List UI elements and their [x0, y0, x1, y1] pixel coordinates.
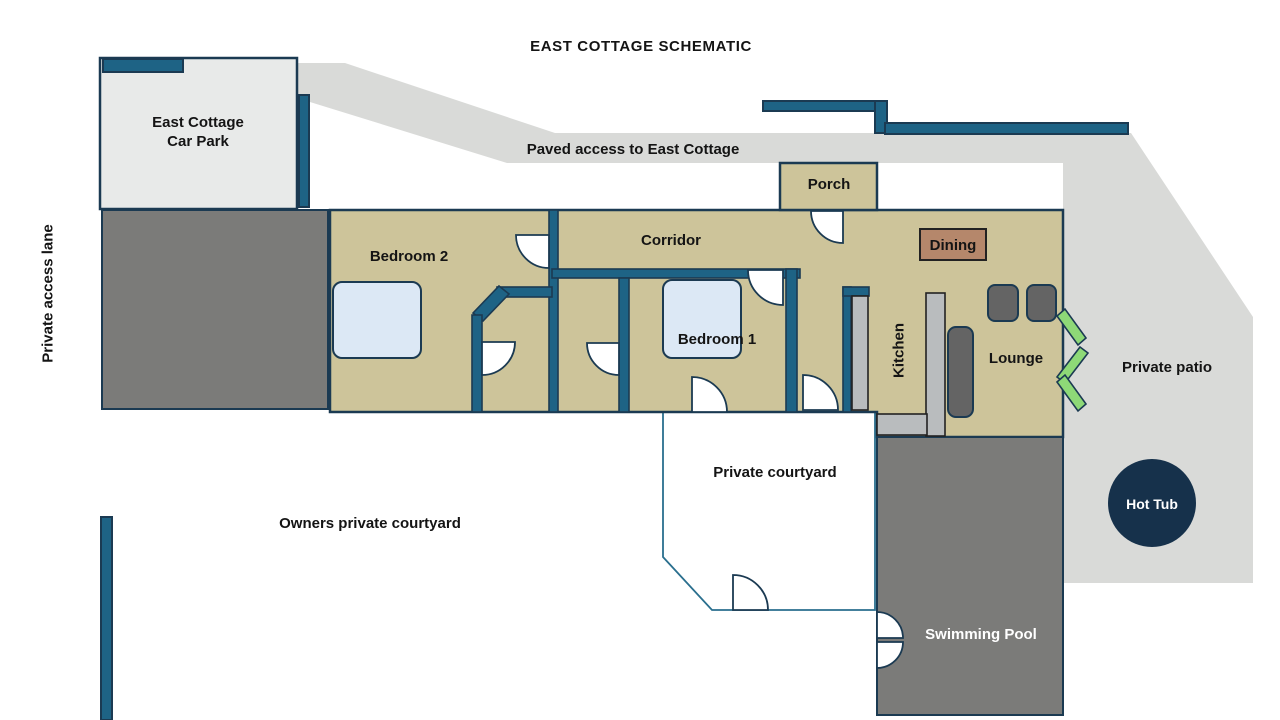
floor-plan-canvas: EAST COTTAGE SCHEMATIC East Cottage Car … — [0, 0, 1280, 720]
car-park-label: East Cottage Car Park — [138, 113, 258, 151]
lounge-label: Lounge — [956, 349, 1076, 368]
bedroom1-left-wall — [619, 278, 629, 412]
ensuite-left-wall — [472, 315, 482, 412]
bedroom2-label: Bedroom 2 — [339, 247, 479, 266]
bedroom1-right-wall — [786, 269, 797, 412]
entrance-wall-upper — [763, 101, 877, 111]
access-lane-label: Private access lane — [39, 194, 58, 394]
kitchen-wall-cap — [843, 287, 869, 296]
entrance-wall-long — [885, 123, 1128, 134]
bedroom1-label: Bedroom 1 — [647, 330, 787, 349]
paved-access-label: Paved access to East Cottage — [483, 140, 783, 159]
kitchen-counter-left — [852, 296, 868, 410]
bedroom2-bed — [333, 282, 421, 358]
kitchen-label: Kitchen — [890, 301, 909, 401]
page-title: EAST COTTAGE SCHEMATIC — [441, 37, 841, 56]
armchair-1 — [988, 285, 1018, 321]
carpark-top-wall — [103, 59, 183, 72]
owners-courtyard-label: Owners private courtyard — [250, 514, 490, 533]
bedroom2-right-wall — [549, 210, 558, 412]
sofa — [948, 327, 973, 417]
armchair-2 — [1027, 285, 1056, 321]
porch-label: Porch — [789, 175, 869, 194]
carpark-right-wall — [299, 95, 309, 207]
access-lane-block — [102, 210, 328, 409]
private-courtyard-area — [663, 412, 875, 610]
hot-tub-label: Hot Tub — [1102, 495, 1202, 514]
kitchen-counter-middle — [926, 293, 945, 436]
kitchen-left-wall — [843, 287, 851, 412]
private-patio-label: Private patio — [1087, 358, 1247, 377]
owners-courtyard-wall — [101, 517, 112, 720]
corridor-label: Corridor — [611, 231, 731, 250]
dining-label: Dining — [913, 236, 993, 255]
kitchen-counter-bottom — [877, 414, 927, 435]
swimming-pool-area — [877, 437, 1063, 715]
private-courtyard-label: Private courtyard — [695, 463, 855, 482]
swimming-pool-label: Swimming Pool — [901, 625, 1061, 644]
